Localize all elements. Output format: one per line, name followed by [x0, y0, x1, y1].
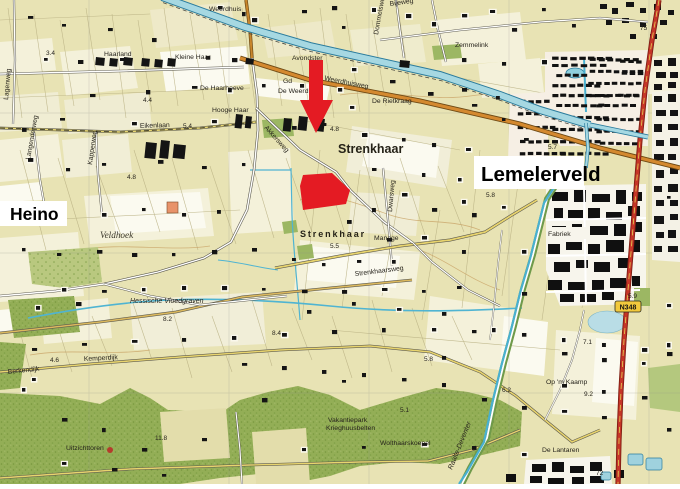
- svg-text:Fabriek: Fabriek: [548, 231, 571, 238]
- svg-text:De Rietkraag: De Rietkraag: [372, 98, 412, 105]
- svg-text:72: 72: [596, 470, 604, 477]
- svg-text:3.4: 3.4: [46, 50, 55, 57]
- svg-text:Zemmelink: Zemmelink: [455, 42, 489, 49]
- svg-text:4.8: 4.8: [127, 174, 136, 181]
- svg-text:11.8: 11.8: [155, 435, 168, 442]
- svg-text:N348: N348: [620, 305, 637, 312]
- svg-text:8.2: 8.2: [163, 316, 172, 323]
- svg-text:Lemelerveld: Lemelerveld: [481, 163, 601, 186]
- svg-text:Gd: Gd: [283, 78, 292, 85]
- svg-text:Hessische Vloedgraven: Hessische Vloedgraven: [130, 298, 204, 305]
- svg-text:Wolthaarskoepel: Wolthaarskoepel: [380, 440, 431, 447]
- svg-text:Haarland: Haarland: [104, 51, 132, 58]
- svg-text:5.8: 5.8: [424, 356, 433, 363]
- svg-text:4.4: 4.4: [143, 97, 152, 104]
- svg-text:Strenkhaar: Strenkhaar: [300, 229, 366, 239]
- svg-text:8.4: 8.4: [272, 330, 281, 337]
- svg-text:Strenkhaar: Strenkhaar: [338, 142, 403, 156]
- svg-text:Op 'm Kaamp: Op 'm Kaamp: [546, 379, 588, 386]
- svg-text:75: 75: [640, 25, 648, 32]
- svg-text:5.7: 5.7: [548, 144, 557, 151]
- svg-text:De Haarhoeve: De Haarhoeve: [200, 85, 244, 92]
- svg-text:Manage: Manage: [374, 235, 399, 242]
- svg-text:De Weerd: De Weerd: [278, 88, 309, 95]
- svg-text:6.2: 6.2: [502, 387, 511, 394]
- svg-text:5.9: 5.9: [628, 293, 637, 300]
- svg-text:Krieghuusbelten: Krieghuusbelten: [326, 425, 375, 432]
- svg-text:5.4: 5.4: [183, 123, 192, 130]
- svg-text:4.6: 4.6: [50, 357, 59, 364]
- svg-text:5.8: 5.8: [486, 192, 495, 199]
- svg-text:4.8: 4.8: [330, 126, 339, 133]
- svg-text:7.1: 7.1: [583, 339, 592, 346]
- svg-text:Weerdhuis: Weerdhuis: [209, 6, 242, 13]
- svg-text:Veldhoek: Veldhoek: [100, 230, 134, 240]
- svg-text:Eikenlaan: Eikenlaan: [140, 122, 170, 130]
- svg-text:5.5: 5.5: [330, 243, 339, 250]
- svg-text:9.2: 9.2: [584, 391, 593, 398]
- svg-text:Vakantiepark: Vakantiepark: [328, 417, 368, 424]
- svg-text:Hooge Haar: Hooge Haar: [212, 107, 249, 114]
- svg-text:De Lantaren: De Lantaren: [542, 447, 580, 454]
- svg-text:5.1: 5.1: [400, 407, 409, 414]
- svg-text:Kleine Haar: Kleine Haar: [175, 54, 211, 61]
- svg-text:Heino: Heino: [10, 204, 59, 224]
- svg-text:Uitzichttoren: Uitzichttoren: [66, 445, 104, 452]
